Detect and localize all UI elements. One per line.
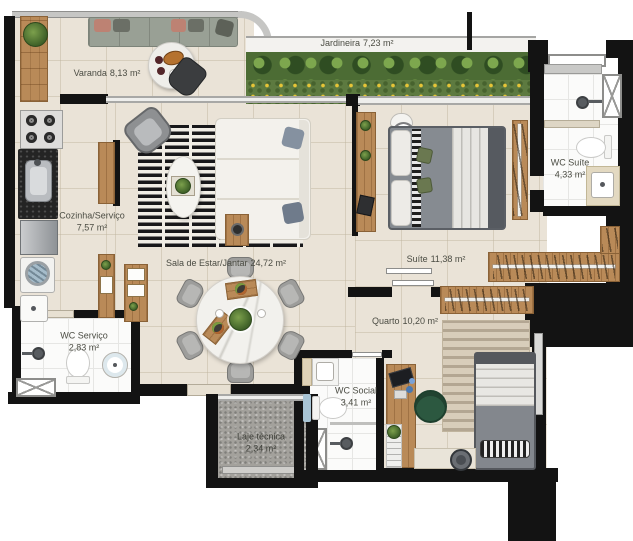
- hanging-clothes: [445, 289, 529, 311]
- washer-drum: [25, 261, 50, 286]
- room-area: 7,57 m²: [77, 222, 108, 234]
- room-name: Sala de Estar/Jantar: [166, 258, 248, 270]
- room-area: 7,23 m²: [363, 38, 394, 50]
- burner: [26, 132, 37, 143]
- green-cushion: [416, 177, 433, 194]
- small-plate: [157, 67, 165, 75]
- room-area: 24,72 m²: [251, 258, 287, 270]
- wc-social-counter: [302, 358, 312, 386]
- room-area: 11,38 m²: [431, 254, 466, 266]
- shower-curb: [544, 120, 600, 128]
- hanging-clothes: [602, 228, 618, 252]
- quarto-bed-head: [476, 354, 534, 364]
- room-area: 10,20 m²: [402, 316, 438, 328]
- suite-bed-foot: [488, 128, 504, 228]
- quarto-bed-blanket: [476, 364, 534, 406]
- suite-bed-pillow: [391, 130, 411, 176]
- dining-chair: [227, 361, 254, 383]
- laje-glass: [218, 394, 306, 401]
- room-area: 4,33 m²: [555, 169, 586, 181]
- room-name: Cozinha/Serviço: [59, 210, 125, 222]
- label-wc-social: WC Social 3,41 m²: [335, 385, 377, 408]
- bench-cushion: [188, 19, 204, 32]
- wc-suite-shaft: [602, 74, 622, 118]
- room-area: 2,34 m²: [246, 443, 277, 455]
- room-name: Suíte: [407, 254, 428, 266]
- room-area: 3,41 m²: [341, 397, 372, 409]
- picture-frame: [127, 284, 145, 297]
- desk-chair: [414, 390, 447, 423]
- wall-segment: [4, 16, 15, 308]
- room-name: WC Suíte: [551, 157, 590, 169]
- label-cozinha: Cozinha/Serviço 7,57 m²: [59, 210, 125, 233]
- room-name: Jardineira: [320, 38, 360, 50]
- wall-segment: [467, 12, 472, 50]
- placemat-plate: [235, 283, 247, 295]
- burner: [44, 115, 55, 126]
- shower-head: [340, 437, 353, 450]
- room-name: Laje técnica: [237, 431, 285, 443]
- dresser-plant: [360, 120, 371, 131]
- suite-window: [358, 96, 532, 105]
- wall-segment: [206, 478, 318, 488]
- label-suite: Suíte 11,38 m²: [407, 254, 466, 266]
- wall-segment: [60, 94, 108, 104]
- room-name: WC Social: [335, 385, 377, 397]
- placemat-plate: [212, 322, 224, 334]
- sideboard-plant: [129, 302, 138, 311]
- kitchen-sink-basin: [30, 167, 47, 195]
- suite-bed-blanket: [452, 128, 488, 228]
- label-quarto: Quarto 10,20 m²: [372, 316, 438, 328]
- bath-mat: [303, 394, 311, 422]
- hanging-clothes: [513, 124, 527, 216]
- burner: [44, 132, 55, 143]
- kitchen-cabinet: [98, 142, 115, 204]
- wall-segment: [530, 64, 544, 176]
- varanda-plant: [23, 22, 48, 47]
- floor-plan: Varanda 8,13 m² Jardineira 7,23 m² Cozin…: [0, 0, 633, 541]
- wall-segment: [508, 477, 556, 541]
- quarto-door-leaf: [392, 280, 434, 286]
- sofa-cushion-line: [217, 158, 299, 160]
- room-name: WC Serviço: [60, 330, 108, 342]
- wc-servico-window: [16, 378, 56, 397]
- shower-head: [32, 347, 45, 360]
- suite-bed-pillow: [391, 180, 411, 226]
- label-jardineira: Jardineira 7,23 m²: [320, 38, 393, 50]
- shower-arm: [22, 352, 33, 355]
- fridge: [20, 220, 58, 255]
- label-sala: Sala de Estar/Jantar 24,72 m²: [166, 258, 286, 270]
- centerpiece-plant: [229, 308, 252, 331]
- laje-ledge: [222, 466, 302, 474]
- room-name: Varanda: [74, 68, 107, 80]
- coffee-table-plant: [175, 178, 191, 194]
- wall-segment: [530, 190, 544, 212]
- wc-suite-sill: [544, 64, 602, 74]
- cabinet-board: [100, 276, 113, 294]
- table-plate: [215, 309, 224, 318]
- label-wc-servico: WC Serviço 2,83 m²: [60, 330, 108, 353]
- cabinet-plant: [101, 260, 111, 270]
- hanging-clothes: [493, 255, 615, 279]
- label-wc-suite: WC Suíte 4,33 m²: [551, 157, 590, 180]
- laundry-tank-drain: [31, 306, 36, 311]
- wall-segment: [382, 350, 392, 358]
- wc-suite-faucet: [600, 182, 605, 187]
- sink-drain: [113, 363, 117, 367]
- sliding-glass-door: [106, 96, 350, 103]
- suite-door-leaf: [386, 268, 432, 274]
- desk-bottle: [406, 386, 413, 393]
- jardineira-bushes: [246, 52, 532, 82]
- wall-segment: [135, 384, 187, 396]
- label-laje: Laje técnica 2,34 m²: [237, 431, 285, 454]
- kitchen-faucet: [34, 159, 41, 166]
- sofa-cushion-line: [217, 198, 299, 200]
- wall-segment: [206, 394, 218, 488]
- bench-cushion: [94, 19, 111, 32]
- table-lamp: [231, 223, 244, 236]
- wall-segment: [348, 287, 392, 297]
- small-plate: [155, 56, 163, 64]
- wall-segment: [131, 310, 140, 398]
- toilet-tank: [66, 376, 90, 384]
- bench-cushion: [113, 19, 130, 32]
- stack-plant: [387, 425, 401, 439]
- desk-keyboard: [394, 390, 407, 399]
- pouf: [450, 449, 472, 471]
- bench-cushion: [171, 19, 186, 32]
- wc-social-door-leaf: [352, 352, 382, 357]
- toilet-bowl: [576, 137, 606, 158]
- shower-arm: [588, 100, 602, 103]
- desk-bottle: [409, 378, 415, 384]
- table-plate: [257, 309, 266, 318]
- shower-arm: [330, 442, 341, 445]
- sofa-pillow: [281, 201, 304, 224]
- label-varanda: Varanda 8,13 m²: [74, 68, 141, 80]
- room-name: Quarto: [372, 316, 400, 328]
- wall-segment: [376, 358, 384, 472]
- quarto-bed-pillow: [480, 440, 530, 458]
- wc-social-sink: [316, 362, 334, 381]
- wall-segment: [606, 40, 633, 58]
- green-cushion: [416, 147, 434, 165]
- room-area: 8,13 m²: [110, 68, 141, 80]
- picture-frame: [127, 268, 145, 281]
- dresser-plant: [360, 150, 371, 161]
- burner: [26, 115, 37, 126]
- shower-partition: [330, 422, 376, 425]
- room-area: 2,83 m²: [69, 342, 100, 354]
